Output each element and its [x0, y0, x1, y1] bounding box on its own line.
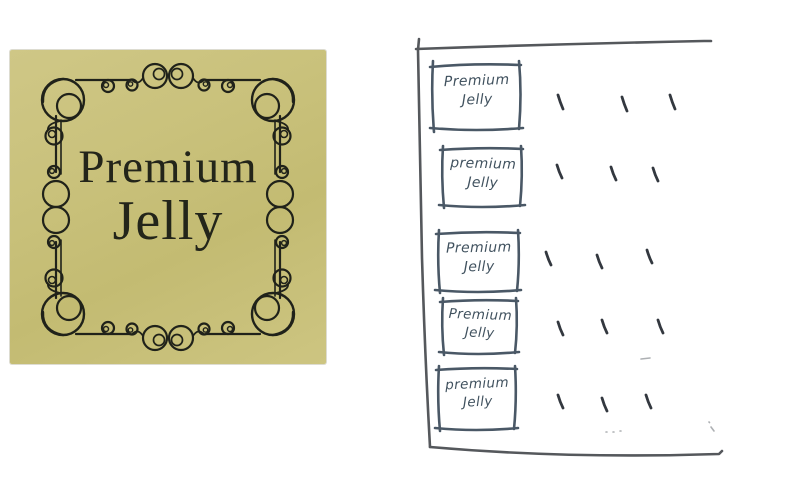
sketch-box-4-line2: Jelly	[443, 323, 516, 344]
label-title-line1: Premium	[10, 142, 326, 193]
gold-label: Premium Jelly	[10, 50, 326, 364]
corner-ornament-bottom-right	[222, 270, 294, 336]
sketch-box-text-3: Premium Jelly	[440, 238, 519, 277]
center-ornament-top	[127, 64, 210, 91]
sketch-box-5-line2: Jelly	[440, 392, 516, 413]
corner-ornament-bottom-left	[42, 270, 114, 336]
corner-ornament-top-left	[42, 79, 114, 145]
stray-marks	[606, 358, 714, 432]
sketch-box-2-line1: premium	[450, 155, 517, 173]
sketch-box-1-line1: Premium	[444, 72, 510, 90]
sketch-box-text-1: Premium Jelly	[433, 71, 520, 112]
sketch-box-text-4: Premium Jelly	[443, 305, 516, 344]
sketch-box-text-2: premium Jelly	[444, 154, 523, 194]
sketch-box-4-line1: Premium	[448, 306, 512, 324]
center-ornament-bottom	[127, 324, 210, 351]
sketch-box-3-line1: Premium	[446, 239, 512, 256]
sheet-sketch: Premium Jelly premium Jelly Premium Jell…	[408, 28, 804, 496]
label-text: Premium Jelly	[10, 142, 326, 249]
sketch-box-5-line1: premium	[445, 375, 509, 394]
sketch-box-3-line2: Jelly	[440, 257, 518, 277]
label-title-line2: Jelly	[10, 193, 326, 249]
scanned-page: Premium Jelly	[0, 0, 804, 496]
sketch-box-1-line2: Jelly	[434, 89, 521, 111]
sketch-box-text-5: premium Jelly	[439, 373, 516, 413]
tick-marks	[546, 95, 675, 411]
sketch-box-2-line2: Jelly	[444, 173, 522, 194]
corner-ornament-top-right	[222, 79, 294, 145]
